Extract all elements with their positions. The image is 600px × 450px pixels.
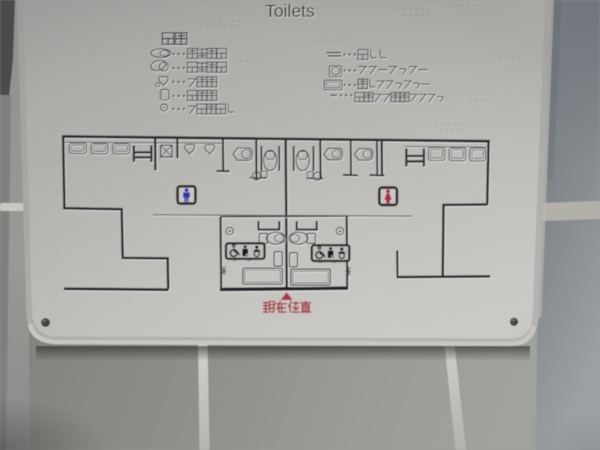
- svg-text:Toilets: Toilets: [265, 1, 315, 21]
